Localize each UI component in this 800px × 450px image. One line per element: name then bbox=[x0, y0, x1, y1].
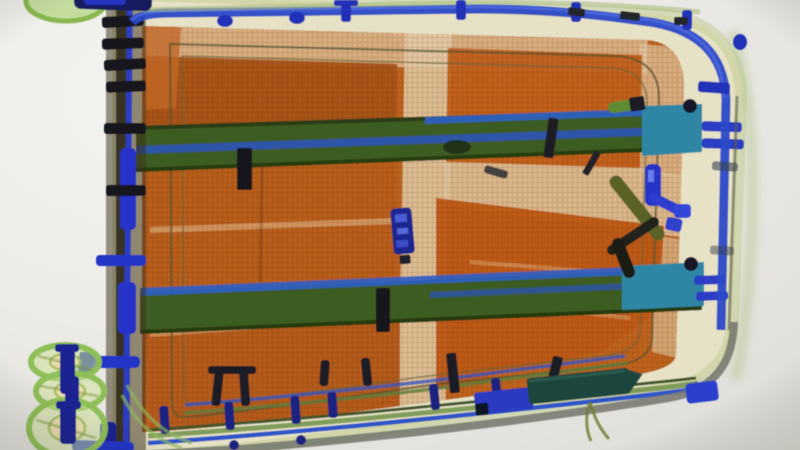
xray-scan-photo bbox=[0, 0, 800, 450]
photo-vignette bbox=[0, 0, 800, 450]
xray-scene bbox=[0, 0, 800, 450]
